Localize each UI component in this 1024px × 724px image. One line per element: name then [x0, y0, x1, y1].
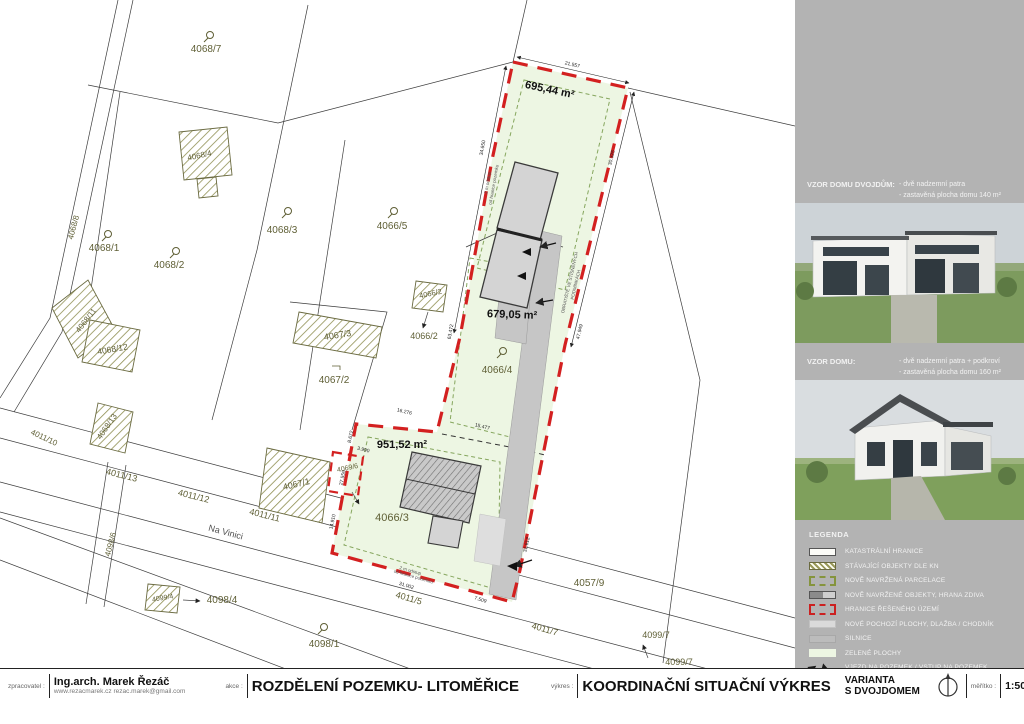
project-title: ROZDĚLENÍ POZEMKU- LITOMĚŘICE — [252, 678, 519, 695]
title-block: zpracovatel : Ing.arch. Marek Řezáč www.… — [0, 668, 1024, 703]
legend-item-stavajici: STÁVAJÍCÍ OBJEKTY DLE KN — [809, 562, 1024, 571]
legend-title: LEGENDA — [809, 530, 1024, 539]
plan-label: 4068/2 — [154, 260, 185, 271]
swatch-walkways — [809, 620, 836, 628]
zpracovatel-label: zpracovatel : — [8, 683, 45, 690]
plan-label: 4098/4 — [207, 595, 238, 606]
legend-item-parcelace: NOVĚ NAVRŽENÁ PARCELACE — [809, 576, 1024, 585]
swatch-green-areas — [809, 649, 836, 657]
info-sidebar: VZOR DOMU DVOJDŮM: - dvě nadzemní patra … — [795, 0, 1024, 668]
plan-label: 4099/7 — [665, 657, 693, 667]
house1-caption: VZOR DOMU DVOJDŮM: - dvě nadzemní patra … — [795, 176, 1024, 203]
house1-line2: - zastavěná plocha domu 140 m² — [899, 191, 1001, 202]
scale-value: 1:500 — [1005, 680, 1024, 692]
swatch-existing-buildings — [809, 562, 836, 570]
author-contact: www.rezacmarek.cz rezac.marek@gmail.com — [54, 688, 186, 695]
legend-item-zelene: ZELENÉ PLOCHY — [809, 649, 1024, 658]
legend-item-hranice: HRANICE ŘEŠENÉHO ÚZEMÍ — [809, 605, 1024, 614]
swatch-new-buildings — [809, 591, 836, 599]
legend-item-pochozi: NOVÉ POCHOZÍ PLOCHY, DLAŽBA / CHODNÍK — [809, 620, 1024, 629]
author-name: Ing.arch. Marek Řezáč — [54, 676, 186, 688]
plan-label: 4067/2 — [319, 375, 350, 386]
vykres-label: výkres : — [551, 683, 573, 690]
swatch-solved-area-boundary — [809, 604, 836, 615]
author-block: Ing.arch. Marek Řezáč www.rezacmarek.cz … — [54, 676, 186, 695]
house-render-duplex — [795, 203, 1024, 343]
plan-label: 4098/1 — [309, 639, 340, 650]
legend-item-objekty: NOVĚ NAVRŽENÉ OBJEKTY, HRANA ZDIVA — [809, 591, 1024, 600]
house2-title: VZOR DOMU: — [807, 357, 899, 366]
north-arrow-icon — [934, 672, 962, 700]
swatch-cadastral-boundary — [809, 548, 836, 556]
meritko-label: měřítko : — [971, 683, 996, 690]
plan-label: 4068/1 — [89, 243, 120, 254]
swatch-road — [809, 635, 836, 643]
drawing-title: KOORDINAČNÍ SITUAČNÍ VÝKRES — [582, 678, 830, 695]
divider — [966, 674, 967, 698]
plan-label: 4066/5 — [377, 221, 408, 232]
plan-label: 4068/3 — [267, 225, 298, 236]
house1-title: VZOR DOMU DVOJDŮM: — [807, 180, 899, 189]
akce-label: akce : — [225, 683, 242, 690]
legend-item-katastr: KATASTRÁLNÍ HRANICE — [809, 547, 1024, 556]
house2-line2: - zastavěná plocha domu 160 m² — [899, 368, 1001, 379]
drawing-sheet: 695,44 m²679,05 m²951,52 m²21.55734.6503… — [0, 0, 1024, 724]
plan-label: 4099/7 — [642, 630, 670, 640]
house2-caption: VZOR DOMU: - dvě nadzemní patra + podkro… — [795, 353, 1024, 380]
divider — [49, 674, 50, 698]
plan-label: 4066/2 — [410, 331, 438, 341]
plan-label: 4068/7 — [191, 44, 222, 55]
plan-label: 4057/9 — [574, 578, 605, 589]
plan-label: 951,52 m² — [377, 439, 427, 451]
plan-label: 4066/3 — [375, 512, 409, 524]
legend: LEGENDA KATASTRÁLNÍ HRANICE STÁVAJÍCÍ OB… — [795, 520, 1024, 672]
plan-label: 4066/4 — [482, 365, 513, 376]
swatch-new-parcels — [809, 576, 836, 586]
legend-item-silnice: SILNICE — [809, 634, 1024, 643]
house2-line1: - dvě nadzemní patra + podkroví — [899, 357, 1001, 368]
house1-line1: - dvě nadzemní patra — [899, 180, 1001, 191]
house-render-attic — [795, 380, 1024, 520]
site-plan-drawing: 695,44 m²679,05 m²951,52 m²21.55734.6503… — [0, 0, 795, 668]
divider — [577, 674, 578, 698]
variant-label: VARIANTA S DVOJDOMEM — [845, 675, 920, 698]
divider — [247, 674, 248, 698]
plan-label: 679,05 m² — [487, 308, 538, 322]
divider — [1000, 674, 1001, 698]
